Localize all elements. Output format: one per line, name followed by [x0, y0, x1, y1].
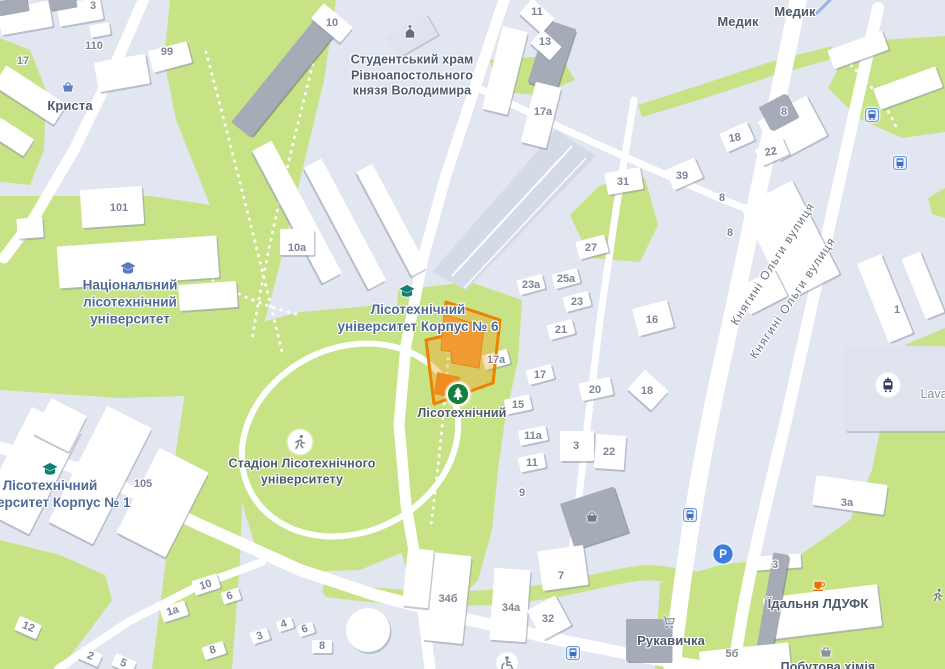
shopping-basket-icon[interactable]: [584, 509, 600, 525]
poi-rukavychka[interactable]: Рукавичка: [637, 633, 705, 649]
bus-stop-icon[interactable]: [683, 508, 698, 523]
sports-runner-icon[interactable]: [930, 587, 945, 603]
poi-stadium[interactable]: Стадіон Лісотехнічного університету: [229, 456, 376, 487]
education-icon[interactable]: [119, 260, 138, 279]
church-icon[interactable]: [402, 24, 419, 41]
poi-yidalnia-ldufk[interactable]: Їдальня ЛДУФК: [768, 596, 869, 612]
house-number: 15: [512, 399, 524, 413]
poi-lava[interactable]: Lava: [920, 387, 945, 403]
accessibility-icon[interactable]: [496, 652, 518, 669]
cafe-cup-icon[interactable]: [811, 577, 827, 593]
house-number: 3а: [841, 497, 853, 511]
stadium-runner-icon[interactable]: [288, 430, 313, 455]
house-number: 18: [728, 131, 742, 147]
house-number: 11: [531, 6, 543, 20]
house-number: 23а: [522, 279, 540, 293]
poi-student-church[interactable]: Студентський храм Рівноапостольного княз…: [351, 53, 474, 100]
poi-forestry-university-korpus-1[interactable]: Лісотехнічний університет Корпус № 1: [0, 478, 131, 512]
bus-stop-icon[interactable]: [893, 156, 908, 171]
parking-icon[interactable]: P: [713, 544, 734, 565]
house-number: 9: [519, 487, 525, 501]
house-number: 10а: [288, 242, 306, 256]
svg-text:P: P: [719, 547, 727, 561]
house-number: 25а: [557, 273, 575, 287]
poi-medyk-1[interactable]: Медик: [717, 14, 758, 30]
house-number: 99: [161, 46, 173, 60]
house-number: 110: [85, 40, 103, 54]
map-canvas[interactable]: КристаСтудентський храм Рівноапостольног…: [0, 0, 945, 669]
house-number: 11: [526, 457, 538, 471]
house-number: 17а: [534, 106, 552, 120]
house-number: 17а: [487, 354, 505, 368]
house-number: 22: [603, 446, 615, 460]
poi-lisotekhnichnyi[interactable]: Лісотехнічний: [418, 406, 507, 422]
shopping-basket-icon[interactable]: [818, 644, 834, 660]
house-number: 18: [641, 385, 653, 399]
house-number: 105: [134, 478, 152, 492]
house-number: 101: [110, 202, 128, 216]
house-number: 27: [585, 242, 597, 256]
house-number: 13: [539, 36, 551, 50]
house-number: 34а: [502, 602, 520, 616]
house-number: 17: [534, 369, 546, 383]
house-number: 8: [319, 640, 325, 654]
house-number: 10: [326, 17, 338, 31]
house-number: 39: [676, 170, 688, 184]
house-number: 31: [617, 176, 629, 190]
poi-national-forestry-university[interactable]: Національний лісотехнічний університет: [83, 278, 178, 329]
house-number: 8: [727, 227, 733, 241]
education-icon[interactable]: [41, 461, 60, 480]
house-number: 22: [764, 145, 778, 161]
education-icon[interactable]: [398, 283, 417, 302]
house-number: 16: [646, 314, 658, 328]
tram-stop-icon[interactable]: [876, 373, 900, 397]
bus-stop-icon[interactable]: [865, 108, 880, 123]
shopping-basket-icon[interactable]: [60, 79, 76, 95]
house-number: 17: [17, 55, 29, 69]
house-number: 8: [781, 106, 787, 120]
house-number: 34б: [438, 593, 457, 607]
poi-pobutova-khimiia[interactable]: Побутова хімія: [781, 660, 876, 669]
house-number: 23: [571, 296, 583, 310]
poi-medyk-2[interactable]: Медик: [774, 4, 815, 20]
house-number: 32: [542, 613, 554, 627]
shopping-cart-icon[interactable]: [661, 614, 677, 630]
house-number: 7: [558, 570, 564, 584]
house-number: 11а: [524, 430, 542, 444]
park-tree-icon[interactable]: [445, 381, 471, 407]
house-number: 8: [719, 192, 725, 206]
house-number: 3: [573, 440, 579, 454]
house-number: 20: [589, 384, 601, 398]
house-number: 1: [894, 304, 900, 318]
house-number: 21: [555, 324, 567, 338]
house-number: 5б: [726, 648, 739, 662]
house-number: 3: [90, 0, 96, 14]
poi-krysta[interactable]: Криста: [47, 98, 92, 114]
poi-forestry-university-korpus-6[interactable]: Лісотехнічний університет Корпус № 6: [337, 302, 498, 336]
bus-stop-icon[interactable]: [566, 646, 581, 661]
house-number: 3: [772, 559, 778, 573]
